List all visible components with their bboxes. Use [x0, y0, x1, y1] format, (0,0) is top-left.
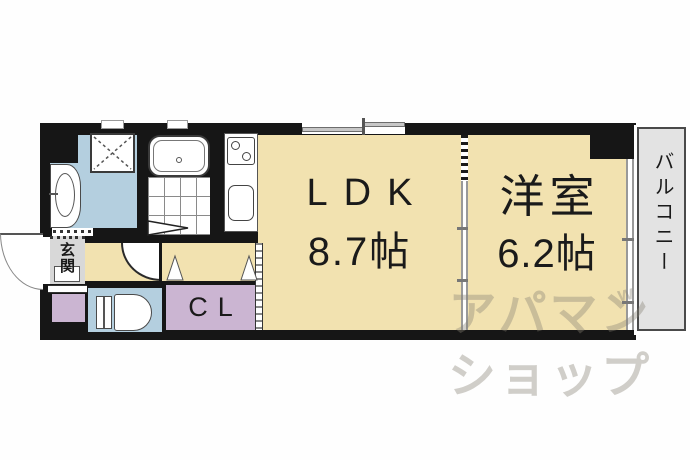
closet-label: CL — [166, 294, 255, 321]
ldk-size: 8.7帖 — [258, 232, 461, 272]
room-balcony: バルコニー — [637, 127, 686, 331]
toilet-tank — [96, 296, 112, 329]
window-sash — [302, 127, 365, 132]
door-dots — [53, 230, 92, 233]
western-name: 洋室 — [499, 171, 599, 222]
toilet-bowl-icon — [114, 294, 152, 331]
burner — [231, 141, 240, 150]
western-size: 6.2帖 — [468, 234, 626, 274]
entry-door-swing-icon — [0, 233, 43, 290]
balcony-label-text: バルコニー — [651, 151, 673, 276]
floorplan-canvas: LDK 8.7帖 CL 玄関 洋室 6.2帖 — [0, 0, 690, 460]
tank-divider — [103, 297, 105, 328]
entrance-step-strip — [48, 285, 87, 293]
ldk-size-text: 8.7帖 — [308, 230, 412, 274]
bathtub-icon — [148, 135, 210, 177]
watermark-line2: ショップ — [440, 346, 660, 408]
ldk-name: LDK — [307, 172, 429, 214]
entrance-label: 玄関 — [59, 242, 74, 274]
watermark-text2: ショップ — [448, 350, 652, 403]
faucet-icon — [49, 193, 58, 195]
vent-icon — [101, 120, 124, 129]
ldk-western-sliding-door — [461, 181, 468, 330]
entrance-storage — [52, 294, 85, 322]
washroom-wall-block — [50, 135, 78, 163]
vanity-basin-icon — [50, 164, 81, 228]
window-to-balcony — [626, 159, 634, 330]
wall-notch — [590, 123, 636, 159]
entrance-label-text: 玄関 — [58, 242, 75, 274]
hall-door-leaf — [159, 243, 162, 281]
partition-hatch — [461, 135, 468, 181]
kitchen-sink-icon — [228, 185, 254, 221]
gas-stove-icon — [227, 137, 255, 165]
closet-door-triangle-icon — [239, 254, 259, 282]
washing-machine-pan-icon — [90, 133, 135, 173]
balcony-label: バルコニー — [652, 151, 672, 276]
kitchen-counter — [224, 133, 258, 232]
closet-label-text: CL — [188, 292, 243, 322]
bathtub-inner — [153, 140, 205, 172]
sliding-window-icon — [302, 122, 405, 134]
vent-icon — [167, 120, 188, 129]
window-mullion — [362, 118, 365, 136]
burner — [242, 152, 251, 161]
washroom-door — [52, 228, 93, 236]
bathtub-drain — [176, 157, 182, 163]
western-label: 洋室 — [468, 174, 626, 219]
ldk-label: LDK — [258, 174, 461, 212]
closet-door-triangle-icon — [165, 254, 185, 282]
room-closet: CL — [166, 285, 255, 330]
basin-oval — [55, 173, 75, 217]
room-entrance: 玄関 — [50, 236, 85, 284]
western-size-text: 6.2帖 — [497, 232, 597, 276]
bathroom-folding-door-icon — [146, 218, 192, 238]
window-sash — [363, 122, 405, 127]
